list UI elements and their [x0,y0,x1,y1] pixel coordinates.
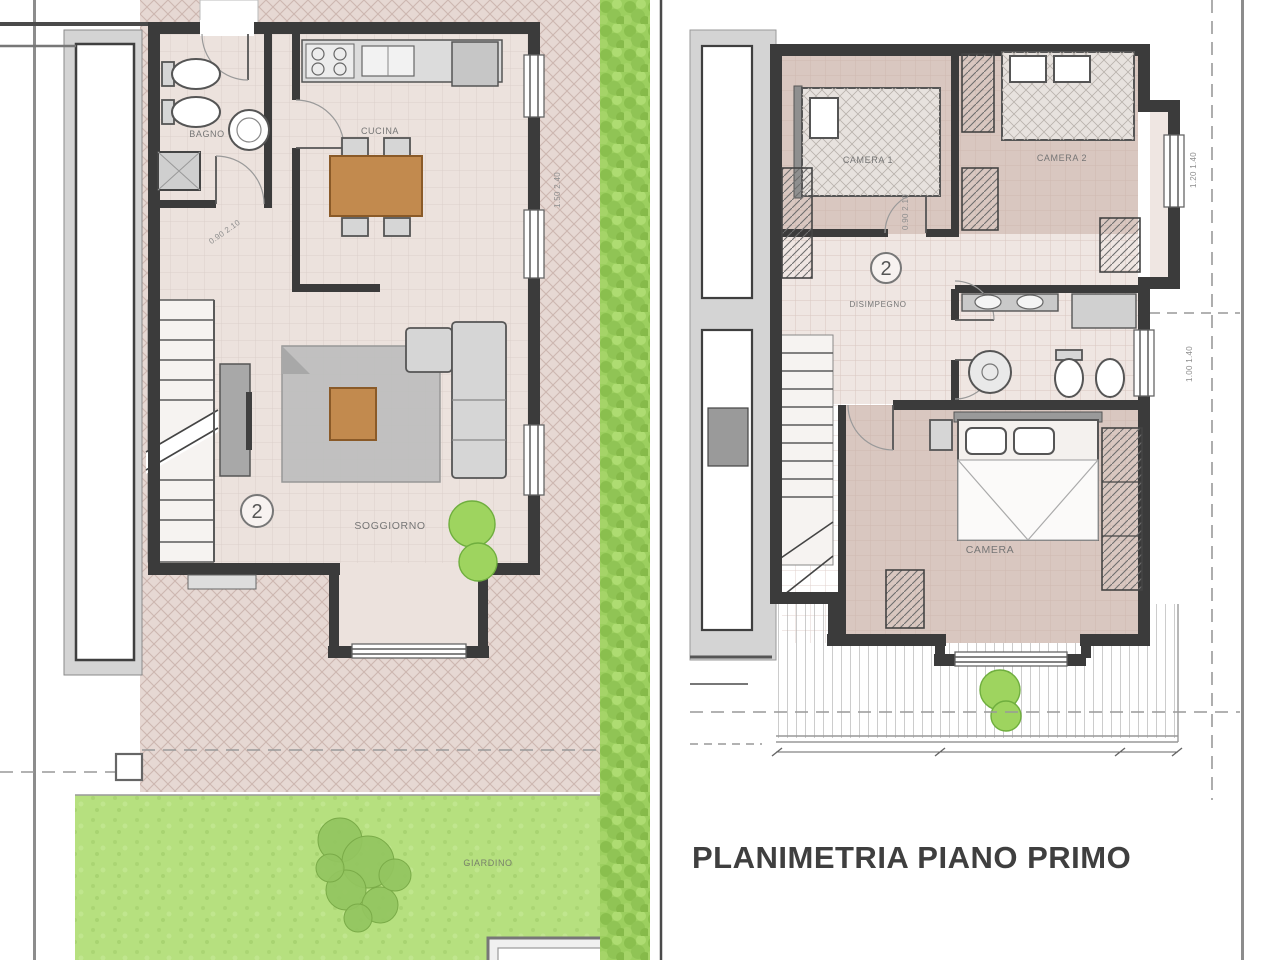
dining-table [330,156,422,216]
dresser [886,570,924,628]
gf-bay-floor [330,569,485,652]
dimension-ff-window1: 1.20 1.40 [1189,152,1198,188]
toilet-icon [1055,359,1083,397]
dimension-gf-window: 1.50 2.40 [553,172,562,208]
bidet-icon [1096,359,1124,397]
nightstand [930,420,952,450]
duvet [958,460,1098,540]
tv-unit [220,364,250,476]
chair [384,138,410,156]
room-label-bagno: BAGNO [189,129,225,139]
bath-cabinet [1072,294,1136,328]
coffee-table [330,388,376,440]
pillow [1054,56,1090,82]
pillow [810,98,838,138]
room-label-camera: CAMERA [966,544,1015,556]
plan-title: PLANIMETRIA PIANO PRIMO [692,840,1131,875]
pillow [1014,428,1054,454]
boundary-gap [650,0,661,960]
ground-floor-plan: BAGNO CUCINA SOGGIORNO GIARDINO 2 1.50 2… [0,0,661,960]
shower-icon [969,351,1011,393]
svg-text:2: 2 [880,258,891,280]
chair [384,218,410,236]
first-floor-plan: CAMERA 1 CAMERA 2 DISIMPEGNO CAMERA 2 1.… [690,0,1240,800]
ff-neighbour-closet [708,408,748,466]
chair [342,218,368,236]
tv-icon [246,392,252,450]
dimension-ff-door: 0.90 2.10 [901,194,910,230]
sheet-border-right [1241,0,1244,960]
staircase-first [778,335,833,598]
dimension-ff-window2: 1.00 1.40 [1185,346,1194,382]
sheet-border-left [33,0,36,960]
wardrobe [962,168,998,230]
pillow [966,428,1006,454]
gf-window-sill [188,575,256,589]
armchair [406,328,452,372]
washbasin-icon [975,295,1001,309]
room-label-cucina: CUCINA [361,126,399,136]
ff-unit-marker: 2 [871,253,901,283]
floor-plan-sheet: BAGNO CUCINA SOGGIORNO GIARDINO 2 1.50 2… [0,0,1280,960]
fridge [452,42,498,86]
svg-text:2: 2 [251,501,262,523]
room-label-camera2: CAMERA 2 [1037,153,1087,163]
closet-column [962,54,994,132]
room-label-camera1: CAMERA 1 [843,155,893,165]
wardrobe [782,168,812,278]
toilet-icon [172,59,220,89]
chair [342,138,368,156]
wardrobe [1102,428,1142,590]
bidet-icon [172,97,220,127]
room-label-giardino: GIARDINO [463,858,512,868]
wardrobe [1100,218,1140,272]
boundary-post [116,754,142,780]
room-label-soggiorno: SOGGIORNO [354,520,425,532]
ff-neighbour-interior-bottom [702,330,752,630]
pillow [1010,56,1046,82]
washbasin-icon [1017,295,1043,309]
washbasin-icon [229,110,269,150]
neighbour-unit-interior [76,44,134,660]
room-label-disimpegno: DISIMPEGNO [849,300,906,309]
gf-unit-marker: 2 [241,495,273,527]
hedge-strip [600,0,650,960]
ff-neighbour-interior-top [702,46,752,298]
floor-plan-drawing: BAGNO CUCINA SOGGIORNO GIARDINO 2 1.50 2… [0,0,1280,960]
